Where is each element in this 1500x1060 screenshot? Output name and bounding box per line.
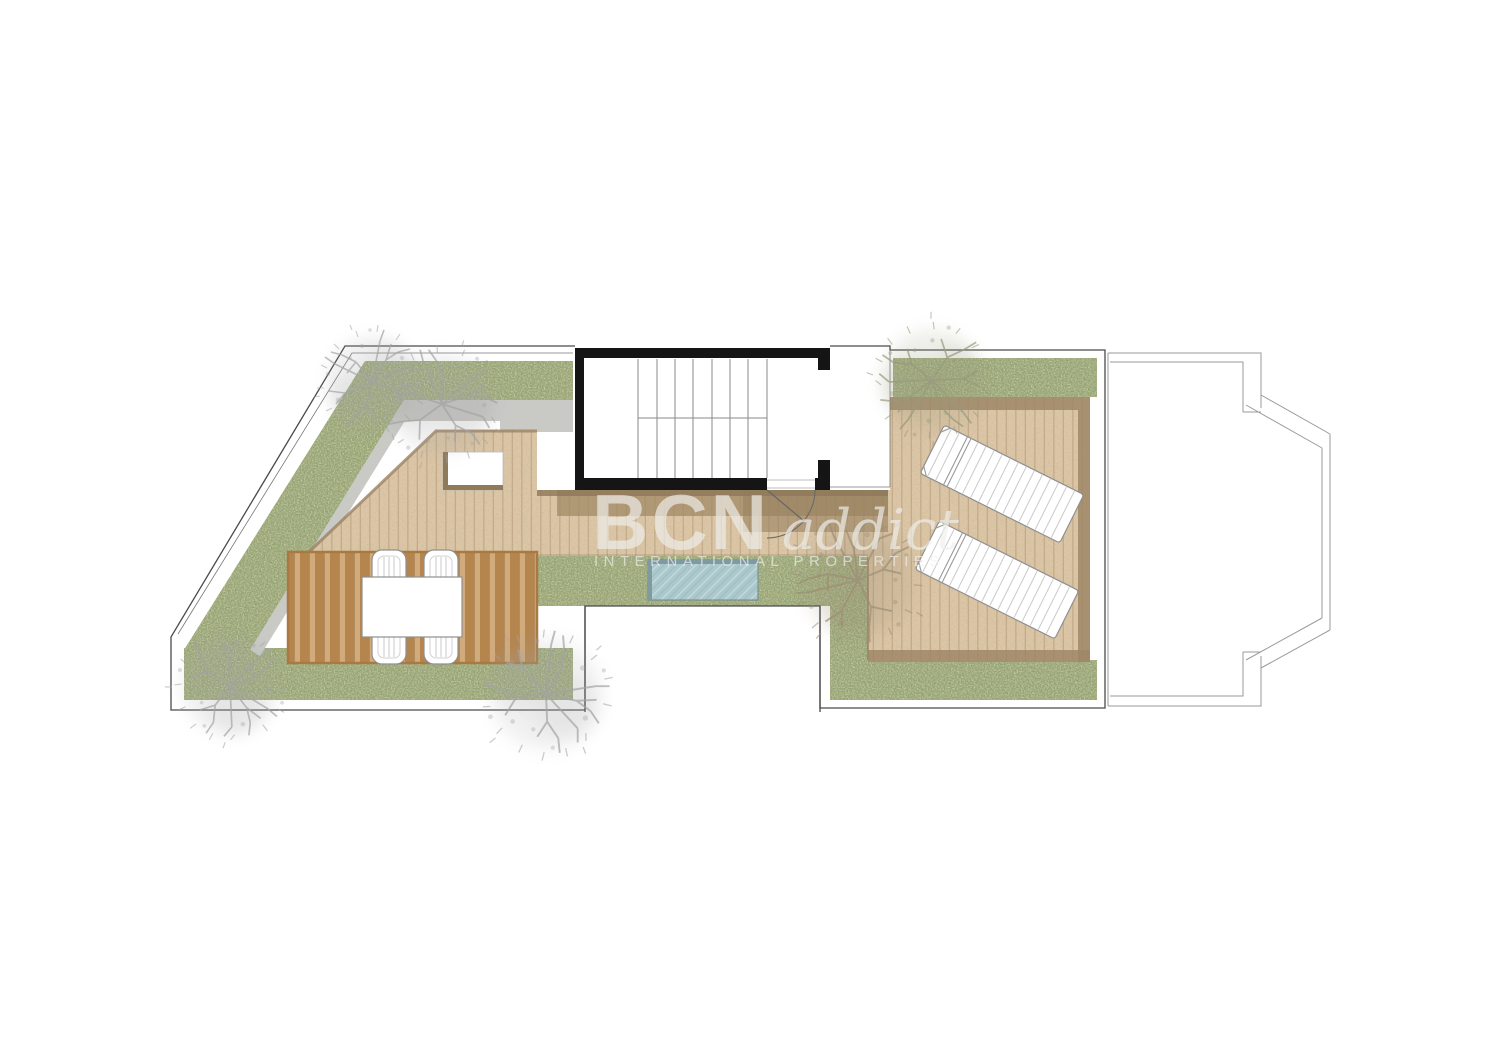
courtyard-void-outline — [585, 606, 820, 712]
stair-right-opening — [816, 370, 830, 460]
adjacent-roof-bay — [1108, 353, 1330, 706]
dining-table — [362, 577, 462, 637]
skylight-opening — [443, 452, 503, 490]
roof-terrace-plan: BCN addict INTERNATIONAL PROPERTIES — [0, 0, 1500, 1060]
watermark-tagline: INTERNATIONAL PROPERTIES — [594, 553, 945, 570]
vestibule-outline — [830, 350, 890, 487]
floor-plan-canvas: BCN addict INTERNATIONAL PROPERTIES — [0, 0, 1500, 1060]
